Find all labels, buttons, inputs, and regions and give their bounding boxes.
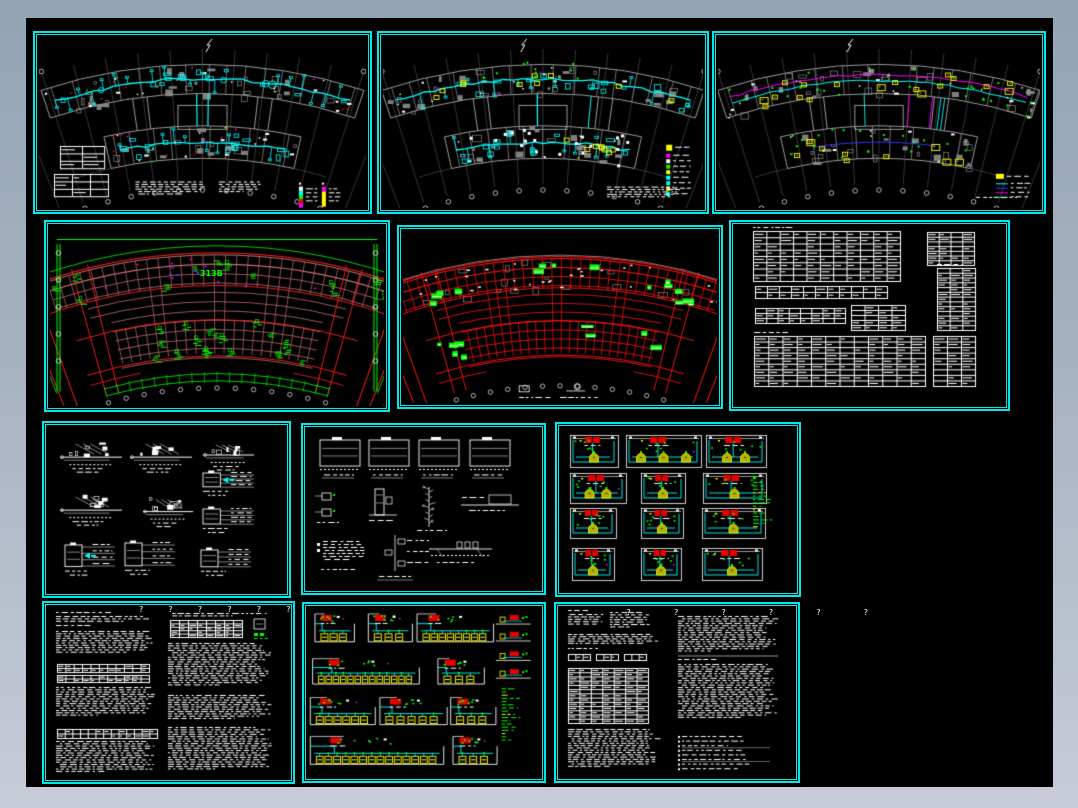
- sheet-detail-drawings-2-canvas: [307, 429, 540, 589]
- sheet-schedule-tables: [729, 220, 1010, 411]
- sheet-floor-plan-red-1: 313B: [44, 220, 390, 412]
- sheet-floor-plan-red-2: [397, 225, 723, 409]
- sheet-schedule-tables-canvas: [735, 226, 1004, 405]
- sheet-floor-plan-hvac-2: [377, 31, 709, 214]
- sheet-unit-diagrams-canvas: [561, 428, 795, 591]
- sheet-spec-notes-1: ? ? ? ? ? ?: [42, 601, 295, 784]
- sheet-detail-drawings-1-canvas: [48, 427, 285, 592]
- sheet-detail-drawings-2: [301, 423, 546, 595]
- sheet-floor-plan-hvac-2-canvas: [383, 37, 703, 208]
- sheet-floor-plan-piping: [712, 31, 1046, 214]
- sheet-spec-notes-2: ? ? ? ? ? ?: [554, 602, 800, 783]
- placeholder-glyph-row: ? ? ? ? ? ?: [139, 605, 296, 614]
- sheet-floor-plan-hvac-1-canvas: [39, 37, 366, 208]
- sheet-floor-plan-red-2-canvas: [403, 231, 717, 403]
- sheet-spec-notes-2-canvas: [560, 608, 794, 777]
- drawing-canvas: 313B? ? ? ? ? ?? ? ? ? ? ?: [26, 18, 1053, 787]
- grid-bubble-label: 313B: [200, 269, 223, 278]
- sheet-floor-plan-piping-canvas: [718, 37, 1040, 208]
- sheet-riser-diagrams-canvas: [308, 608, 540, 777]
- sheet-floor-plan-red-1-canvas: [50, 226, 384, 406]
- sheet-riser-diagrams: [302, 602, 546, 783]
- sheet-spec-notes-1-canvas: [48, 607, 289, 778]
- sheet-floor-plan-hvac-1: [33, 31, 372, 214]
- sheet-detail-drawings-1: [42, 421, 291, 598]
- placeholder-glyph-row: ? ? ? ? ? ?: [626, 608, 879, 617]
- sheet-unit-diagrams: [555, 422, 801, 597]
